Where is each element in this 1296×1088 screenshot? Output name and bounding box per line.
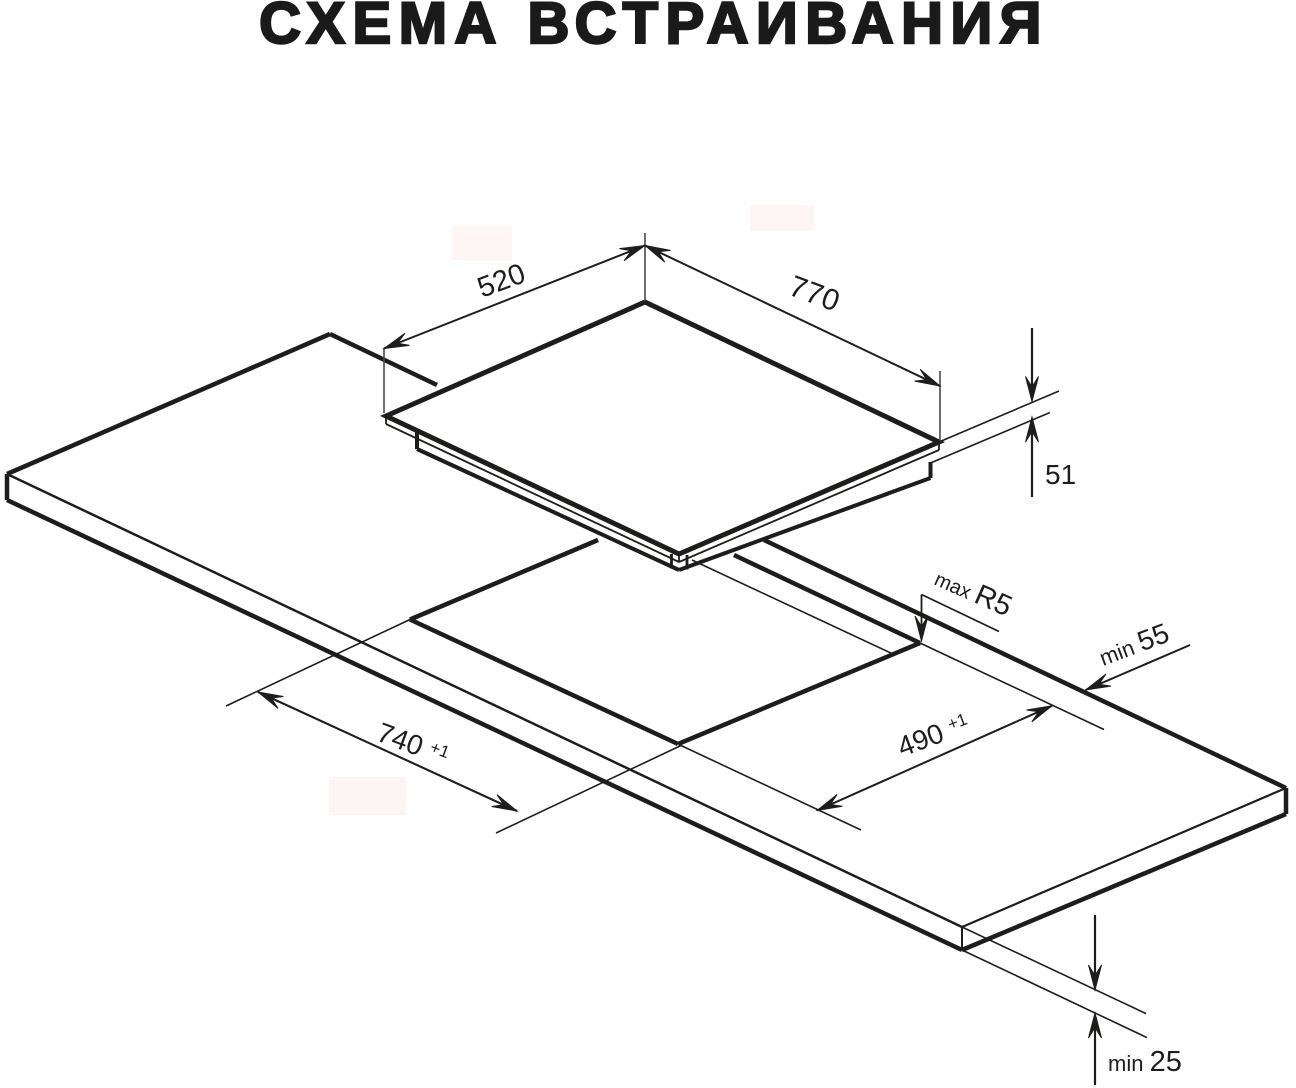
svg-text:min 55: min 55 — [1094, 617, 1173, 672]
svg-text:520: 520 — [473, 258, 530, 305]
svg-text:max R5: max R5 — [930, 561, 1016, 623]
svg-text:770: 770 — [785, 270, 845, 319]
svg-text:min 25: min 25 — [1108, 1046, 1182, 1078]
svg-text:51: 51 — [1045, 459, 1076, 490]
